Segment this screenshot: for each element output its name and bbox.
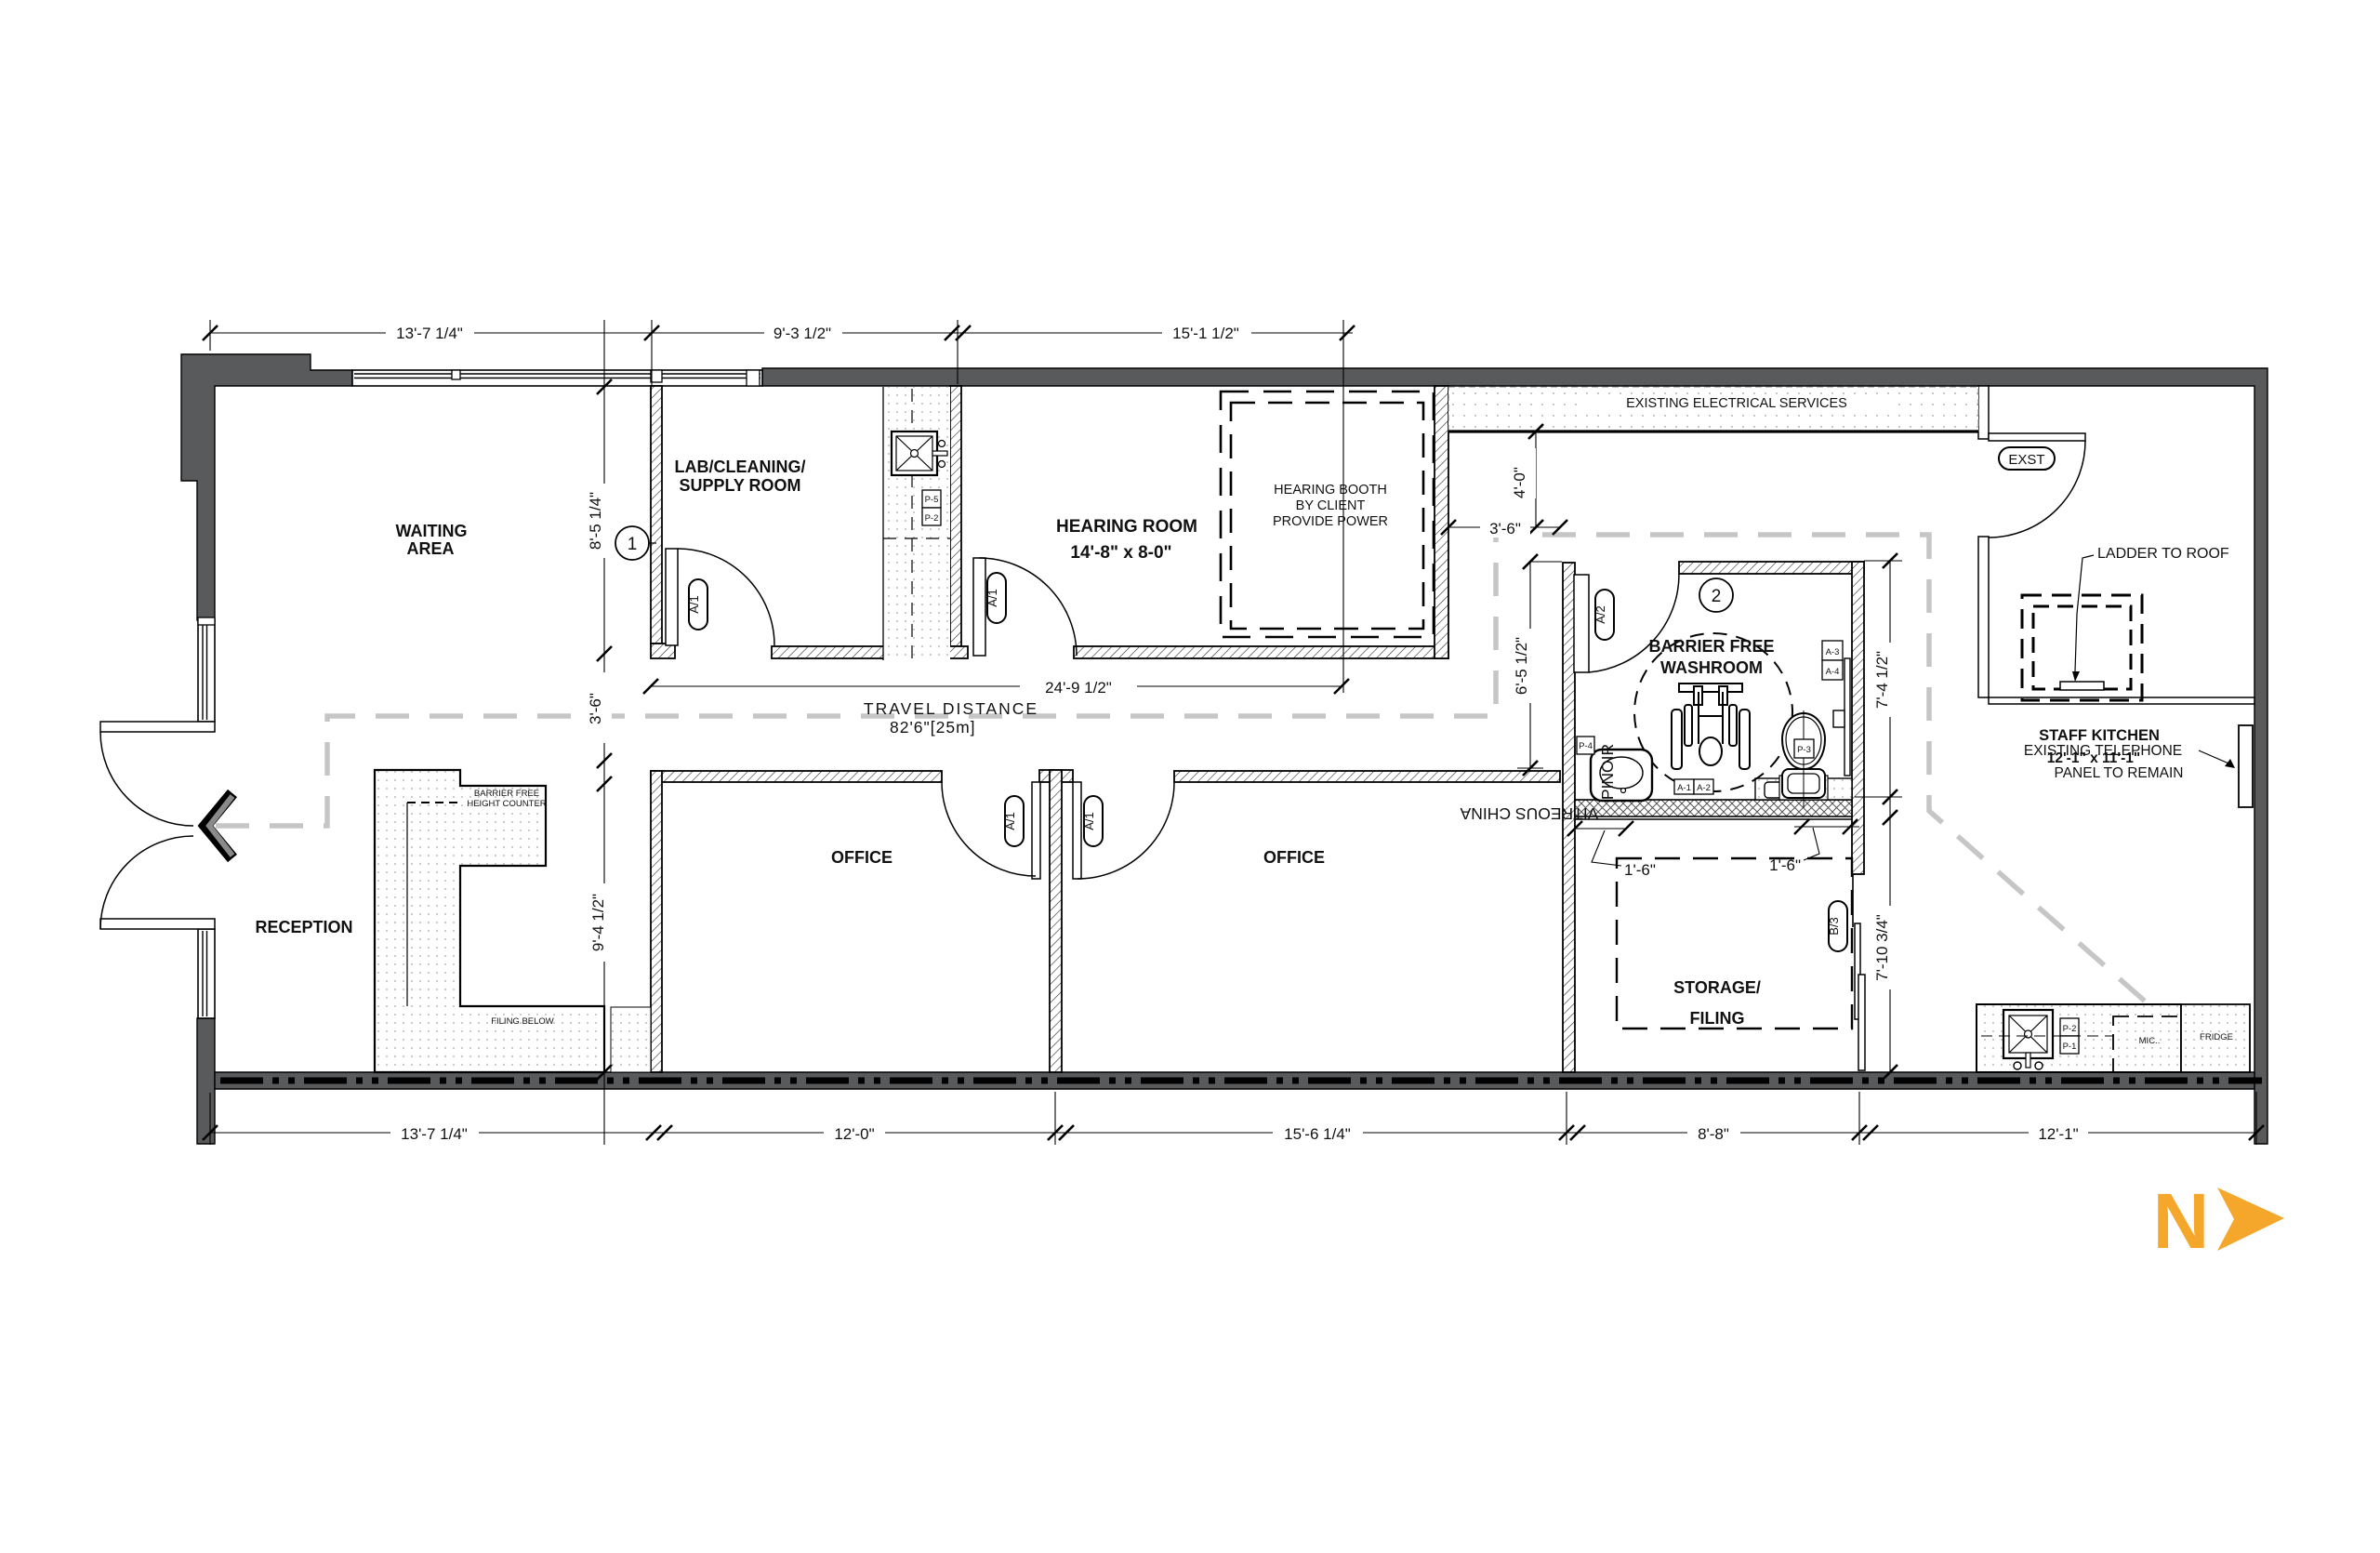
svg-text:14'-8" x 8-0": 14'-8" x 8-0" <box>1070 543 1171 563</box>
svg-text:8'-5 1/4": 8'-5 1/4" <box>587 492 604 550</box>
svg-text:SUPPLY ROOM: SUPPLY ROOM <box>679 476 800 495</box>
svg-text:PINOIR: PINOIR <box>1598 744 1617 800</box>
svg-text:FRIDGE: FRIDGE <box>2200 1032 2233 1042</box>
svg-text:15'-1 1/2": 15'-1 1/2" <box>1172 325 1239 342</box>
svg-text:A/1: A/1 <box>1082 812 1096 830</box>
svg-text:P-1: P-1 <box>2063 1042 2077 1052</box>
svg-text:A-3: A-3 <box>1826 647 1840 657</box>
svg-text:2: 2 <box>1712 587 1722 606</box>
svg-text:STORAGE/: STORAGE/ <box>1673 978 1761 997</box>
svg-text:BARRIER FREE: BARRIER FREE <box>1648 637 1774 656</box>
svg-text:FILING BELOW: FILING BELOW <box>491 1016 554 1027</box>
svg-text:1: 1 <box>628 535 638 554</box>
svg-text:PROVIDE POWER: PROVIDE POWER <box>1273 514 1388 529</box>
svg-text:A-2: A-2 <box>1697 783 1711 793</box>
svg-text:A/1: A/1 <box>985 589 999 607</box>
svg-text:12'-1" x 11'-1": 12'-1" x 11'-1" <box>2047 750 2141 766</box>
svg-text:WASHROOM: WASHROOM <box>1660 658 1763 677</box>
svg-text:LADDER TO ROOF: LADDER TO ROOF <box>2097 546 2229 562</box>
svg-text:8'-8": 8'-8" <box>1698 1125 1729 1143</box>
svg-text:MIC..: MIC.. <box>2139 1036 2161 1046</box>
svg-text:1'-6": 1'-6" <box>1769 856 1801 874</box>
svg-text:3'-6": 3'-6" <box>1489 520 1521 538</box>
svg-text:FILING: FILING <box>1690 1009 1745 1028</box>
svg-text:9'-3 1/2": 9'-3 1/2" <box>773 325 831 342</box>
svg-text:P-5: P-5 <box>925 495 939 505</box>
svg-text:A/2: A/2 <box>1593 605 1607 624</box>
svg-text:1'-6": 1'-6" <box>1624 861 1656 879</box>
svg-text:9'-4 1/2": 9'-4 1/2" <box>589 894 607 951</box>
svg-text:EXST: EXST <box>2008 452 2044 468</box>
svg-text:A-4: A-4 <box>1826 667 1840 677</box>
svg-text:P-2: P-2 <box>925 513 939 524</box>
svg-text:A-1: A-1 <box>1677 783 1691 793</box>
svg-text:B/3: B/3 <box>1827 917 1841 936</box>
svg-text:EXISTING ELECTRICAL SERVICES: EXISTING ELECTRICAL SERVICES <box>1626 396 1847 411</box>
svg-text:OFFICE: OFFICE <box>831 848 892 867</box>
svg-text:15'-6 1/4": 15'-6 1/4" <box>1284 1125 1351 1143</box>
svg-text:24'-9 1/2": 24'-9 1/2" <box>1045 679 1112 697</box>
svg-text:6'-5 1/2": 6'-5 1/2" <box>1513 637 1530 695</box>
svg-text:N: N <box>2153 1177 2210 1265</box>
svg-text:TRAVEL DISTANCE: TRAVEL DISTANCE <box>864 699 1038 718</box>
svg-text:3'-6": 3'-6" <box>587 693 604 724</box>
svg-text:7'-10 3/4": 7'-10 3/4" <box>1873 914 1891 981</box>
svg-text:VITREOUS CHINA: VITREOUS CHINA <box>1460 804 1598 823</box>
svg-text:82'6"[25m]: 82'6"[25m] <box>890 718 976 737</box>
svg-text:STAFF KITCHEN: STAFF KITCHEN <box>2039 727 2160 744</box>
svg-text:P-2: P-2 <box>2063 1024 2077 1034</box>
svg-text:12'-1": 12'-1" <box>2038 1125 2078 1143</box>
svg-text:13'-7 1/4": 13'-7 1/4" <box>401 1125 468 1143</box>
svg-text:BARRIER FREE: BARRIER FREE <box>474 789 539 799</box>
svg-text:WAITING: WAITING <box>396 522 468 540</box>
svg-text:OFFICE: OFFICE <box>1263 848 1325 867</box>
svg-text:13'-7 1/4": 13'-7 1/4" <box>396 325 463 342</box>
svg-text:HEARING ROOM: HEARING ROOM <box>1056 517 1197 537</box>
svg-text:P-4: P-4 <box>1579 741 1593 751</box>
svg-text:RECEPTION: RECEPTION <box>255 918 352 936</box>
svg-text:HEIGHT COUNTER: HEIGHT COUNTER <box>467 799 546 809</box>
svg-text:4'-0": 4'-0" <box>1511 467 1528 498</box>
svg-text:BY CLIENT: BY CLIENT <box>1296 498 1366 513</box>
svg-text:PANEL TO REMAIN: PANEL TO REMAIN <box>2055 765 2184 781</box>
svg-text:7'-4 1/2": 7'-4 1/2" <box>1873 651 1891 709</box>
svg-text:A/1: A/1 <box>1003 812 1017 830</box>
svg-text:A/1: A/1 <box>687 595 701 614</box>
svg-text:AREA: AREA <box>406 539 454 558</box>
svg-text:HEARING BOOTH: HEARING BOOTH <box>1274 483 1387 498</box>
svg-text:12'-0": 12'-0" <box>834 1125 874 1143</box>
svg-text:LAB/CLEANING/: LAB/CLEANING/ <box>675 458 806 476</box>
svg-text:P-3: P-3 <box>1797 745 1811 755</box>
